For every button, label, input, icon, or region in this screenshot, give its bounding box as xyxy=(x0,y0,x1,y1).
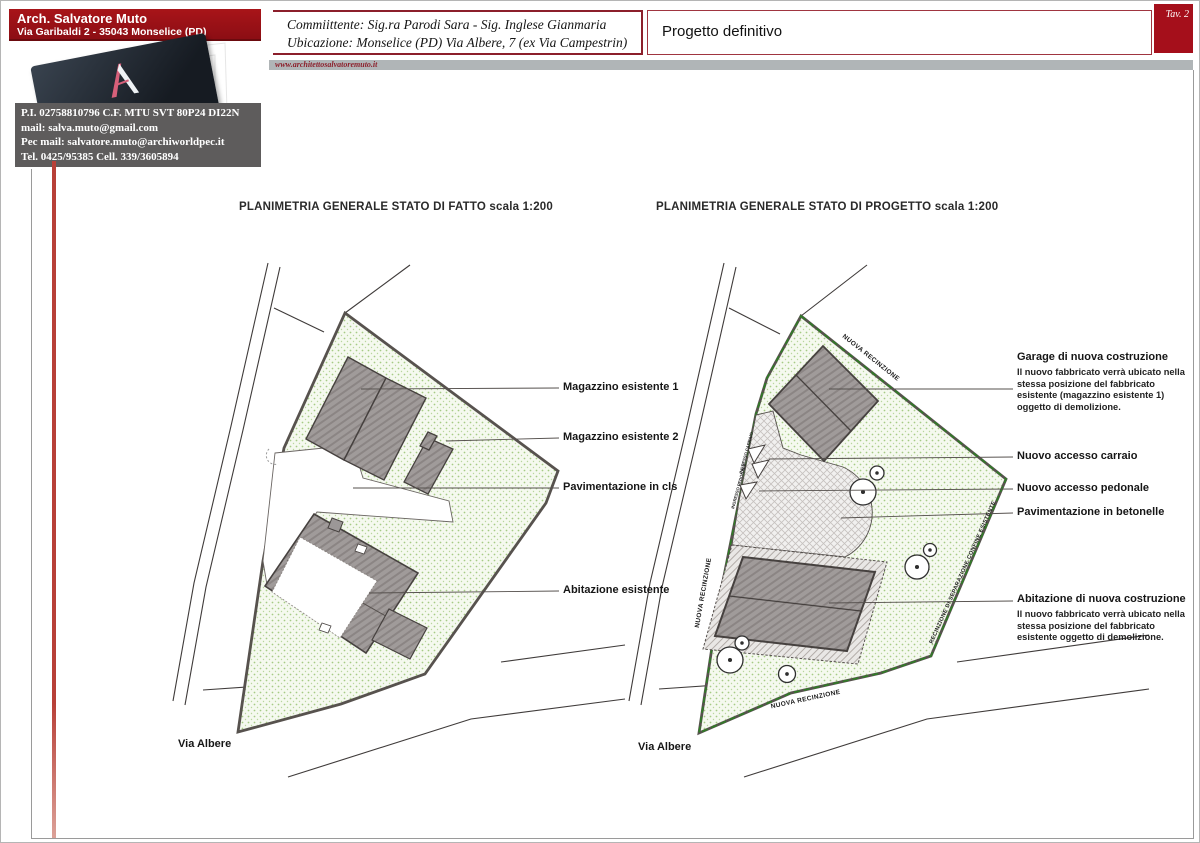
street-label-right: Via Albere xyxy=(638,741,691,753)
site-plan-stato-di-progetto: NUOVA RECINZIONE NUOVA RECINZIONE NUOVA … xyxy=(629,263,1149,777)
architect-title-block: Arch. Salvatore Muto Via Garibaldi 2 - 3… xyxy=(9,9,261,41)
architect-name: Arch. Salvatore Muto xyxy=(17,11,253,26)
label-magazzino-esistente-2: Magazzino esistente 2 xyxy=(563,431,679,443)
label-nuovo-accesso-pedonale: Nuovo accesso pedonale xyxy=(1017,482,1149,494)
contact-pec-line: Pec mail: salvatore.muto@archiworldpec.i… xyxy=(21,135,255,150)
label-pavimentazione-betonelle: Pavimentazione in betonelle xyxy=(1017,506,1164,518)
sheet-frame-left xyxy=(31,169,32,839)
red-accent-line xyxy=(52,161,56,839)
sheet-frame-right xyxy=(1193,70,1194,839)
building-abitazione-nuova xyxy=(703,545,887,664)
label-nuovo-accesso-carraio: Nuovo accesso carraio xyxy=(1017,450,1137,462)
sheet-frame-bottom xyxy=(31,838,1193,839)
plan-title-stato-di-progetto: PLANIMETRIA GENERALE STATO DI PROGETTO s… xyxy=(656,201,998,213)
commission-box: Commiittente: Sig.ra Parodi Sara - Sig. … xyxy=(273,10,643,55)
street-label-left: Via Albere xyxy=(178,738,231,750)
project-title: Progetto definitivo xyxy=(662,23,782,40)
plan-title-stato-di-fatto: PLANIMETRIA GENERALE STATO DI FATTO scal… xyxy=(239,201,553,213)
fence-label-left: NUOVA RECINZIONE xyxy=(694,557,713,628)
website-bar xyxy=(269,60,1193,70)
label-abitazione-nuova-costruzione: Abitazione di nuova costruzione xyxy=(1017,593,1186,605)
note-abitazione: Il nuovo fabbricato verrà ubicato nella … xyxy=(1017,609,1185,644)
label-garage-nuova-costruzione: Garage di nuova costruzione xyxy=(1017,351,1168,363)
client-line: Commiittente: Sig.ra Parodi Sara - Sig. … xyxy=(287,16,641,34)
contact-info-box: P.I. 02758810796 C.F. MTU SVT 80P24 DI22… xyxy=(15,103,261,167)
architect-logo-icon xyxy=(103,58,143,100)
project-title-box: Progetto definitivo xyxy=(647,10,1152,55)
label-abitazione-esistente: Abitazione esistente xyxy=(563,584,669,596)
contact-vat-line: P.I. 02758810796 C.F. MTU SVT 80P24 DI22… xyxy=(21,106,255,121)
architect-address: Via Garibaldi 2 - 35043 Monselice (PD) xyxy=(17,26,253,38)
note-garage: Il nuovo fabbricato verrà ubicato nella … xyxy=(1017,367,1189,413)
label-magazzino-esistente-1: Magazzino esistente 1 xyxy=(563,381,679,393)
contact-tel-line: Tel. 0425/95385 Cell. 339/3605894 xyxy=(21,150,255,165)
drawing-sheet: NUOVA RECINZIONE NUOVA RECINZIONE NUOVA … xyxy=(0,0,1200,843)
sheet-number: Tav. 2 xyxy=(1166,9,1189,20)
location-line: Ubicazione: Monselice (PD) Via Albere, 7… xyxy=(287,34,641,52)
label-pavimentazione-cls: Pavimentazione in cls xyxy=(563,481,677,493)
site-plan-stato-di-fatto xyxy=(173,263,625,777)
contact-mail-line: mail: salva.muto@gmail.com xyxy=(21,121,255,136)
sheet-number-box: Tav. 2 xyxy=(1154,4,1193,53)
website-link: www.architettosalvatoremuto.it xyxy=(275,60,377,69)
